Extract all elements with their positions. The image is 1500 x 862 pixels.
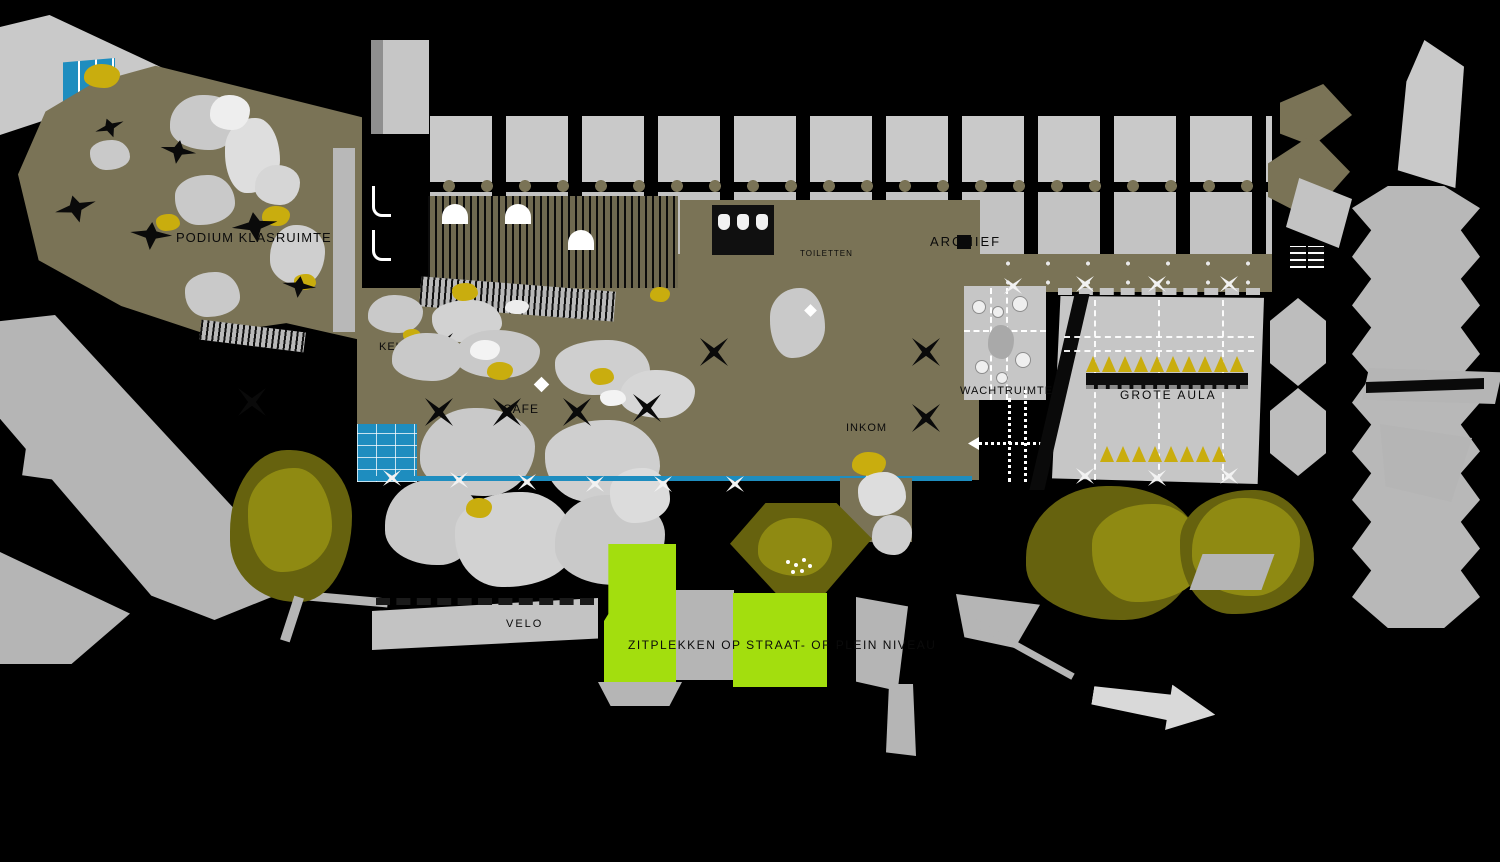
zitplekken-label: ZITPLEKKEN OP STRAAT- OF PLEIN NIVEAU (628, 638, 936, 652)
hex-bay (1270, 298, 1326, 386)
seating-blob (368, 295, 423, 333)
speckle-cluster (786, 560, 790, 564)
seat (1198, 356, 1212, 372)
toilet-fixture (737, 214, 749, 230)
tower-top-facet (1392, 40, 1464, 188)
toilet-fixture (756, 214, 768, 230)
toilet-block (712, 205, 774, 255)
seating-blob-over-keuken (392, 333, 464, 381)
plaza-wedge (956, 594, 1040, 648)
inkom-label: INKOM (846, 422, 887, 434)
stair-hook-symbol (372, 186, 391, 217)
gray-post-strip (886, 684, 916, 756)
canopy-blob (858, 472, 906, 516)
aula-seat-row-2 (1100, 446, 1232, 464)
seat (1116, 446, 1130, 462)
toiletten-label: TOILETTEN (800, 249, 853, 258)
seating-blob (770, 288, 825, 358)
wedge-edge-band (333, 148, 355, 332)
seat (1166, 356, 1180, 372)
aula-seat-shadow-band (1086, 373, 1248, 389)
guide-line (1064, 350, 1254, 352)
grote-aula-label: GROTE AULA (1120, 388, 1217, 402)
seating-blob (620, 370, 695, 418)
right-fragment-label: EL (1446, 379, 1461, 391)
seating-blob (505, 300, 529, 314)
guide-line (1064, 336, 1254, 338)
table-circle (996, 372, 1008, 384)
seating-blob (210, 95, 250, 130)
bench-parallelogram (1189, 554, 1274, 590)
stair-hook-symbol (372, 230, 391, 261)
reading-arch-table (442, 204, 468, 224)
velo-band (372, 598, 598, 650)
faceted-tower (1352, 186, 1480, 628)
seat (1132, 446, 1146, 462)
sidewalk-left-lower (0, 552, 130, 664)
seat (1212, 446, 1226, 462)
table-circle (972, 300, 986, 314)
roof-garden-wedge (1280, 84, 1352, 146)
stair-tower (371, 40, 429, 134)
tree-canopy-light (758, 518, 832, 576)
route-dotted (1008, 398, 1011, 482)
reading-arch-table (568, 230, 594, 250)
seating-blob (175, 175, 235, 225)
wachtruimte-label: WACHTRUIMTE (960, 385, 1053, 397)
accent-blob-yellow (487, 362, 513, 380)
route-dotted (1024, 390, 1027, 482)
reading-arch-table (505, 204, 531, 224)
accent-blob-yellow (650, 287, 670, 302)
tree-canopy-light (248, 468, 332, 572)
toilet-fixture (718, 214, 730, 230)
seat (1214, 356, 1228, 372)
archief-overlap-mark (957, 235, 971, 249)
seat (1164, 446, 1178, 462)
shelf-symbol (1308, 246, 1324, 268)
table-circle (1012, 296, 1028, 312)
tree-trunk (280, 596, 304, 643)
accent-blob-yellow (466, 498, 492, 518)
seat (1134, 356, 1148, 372)
seat (1196, 446, 1210, 462)
column-x (238, 388, 266, 416)
hex-bay (1270, 388, 1326, 476)
seat (1230, 356, 1244, 372)
seat (1180, 446, 1194, 462)
gray-block-mid (676, 590, 734, 680)
seating-blob (470, 340, 500, 360)
gray-step-under (598, 682, 682, 706)
accent-blob-yellow (84, 64, 120, 88)
seat (1100, 446, 1114, 462)
accent-blob-yellow (156, 214, 180, 231)
seat (1118, 356, 1132, 372)
stacks-row-1 (430, 116, 1272, 182)
seating-blob (600, 390, 626, 406)
plaza-square (22, 416, 94, 484)
seating-blob (90, 140, 130, 170)
aula-seat-row-1 (1086, 356, 1250, 374)
seat (1148, 446, 1162, 462)
velo-rack-teeth (376, 598, 594, 605)
floor-plan-canvas: PODIUM KLASRUIMTE TOILETTEN ARCHIEF (0, 0, 1500, 862)
seating-blob (255, 165, 300, 205)
cafe-label: CAFE (503, 402, 539, 416)
direction-arrow (1089, 673, 1219, 738)
velo-label: VELO (506, 618, 543, 630)
wacht-zigzag-wall (948, 284, 963, 476)
accent-blob-yellow (452, 283, 478, 301)
seating-blob (988, 325, 1014, 359)
table-circle (1015, 352, 1031, 368)
seat-block-green (604, 544, 676, 684)
seat (1150, 356, 1164, 372)
table-circle (975, 360, 989, 374)
seat (1102, 356, 1116, 372)
canopy-blob (872, 515, 912, 555)
seat (1086, 356, 1100, 372)
table-circle (992, 306, 1004, 318)
shelf-symbol (1290, 246, 1306, 268)
seating-blob (185, 272, 240, 317)
guide-line (1094, 300, 1096, 480)
accent-blob-yellow (590, 368, 614, 385)
seat (1182, 356, 1196, 372)
